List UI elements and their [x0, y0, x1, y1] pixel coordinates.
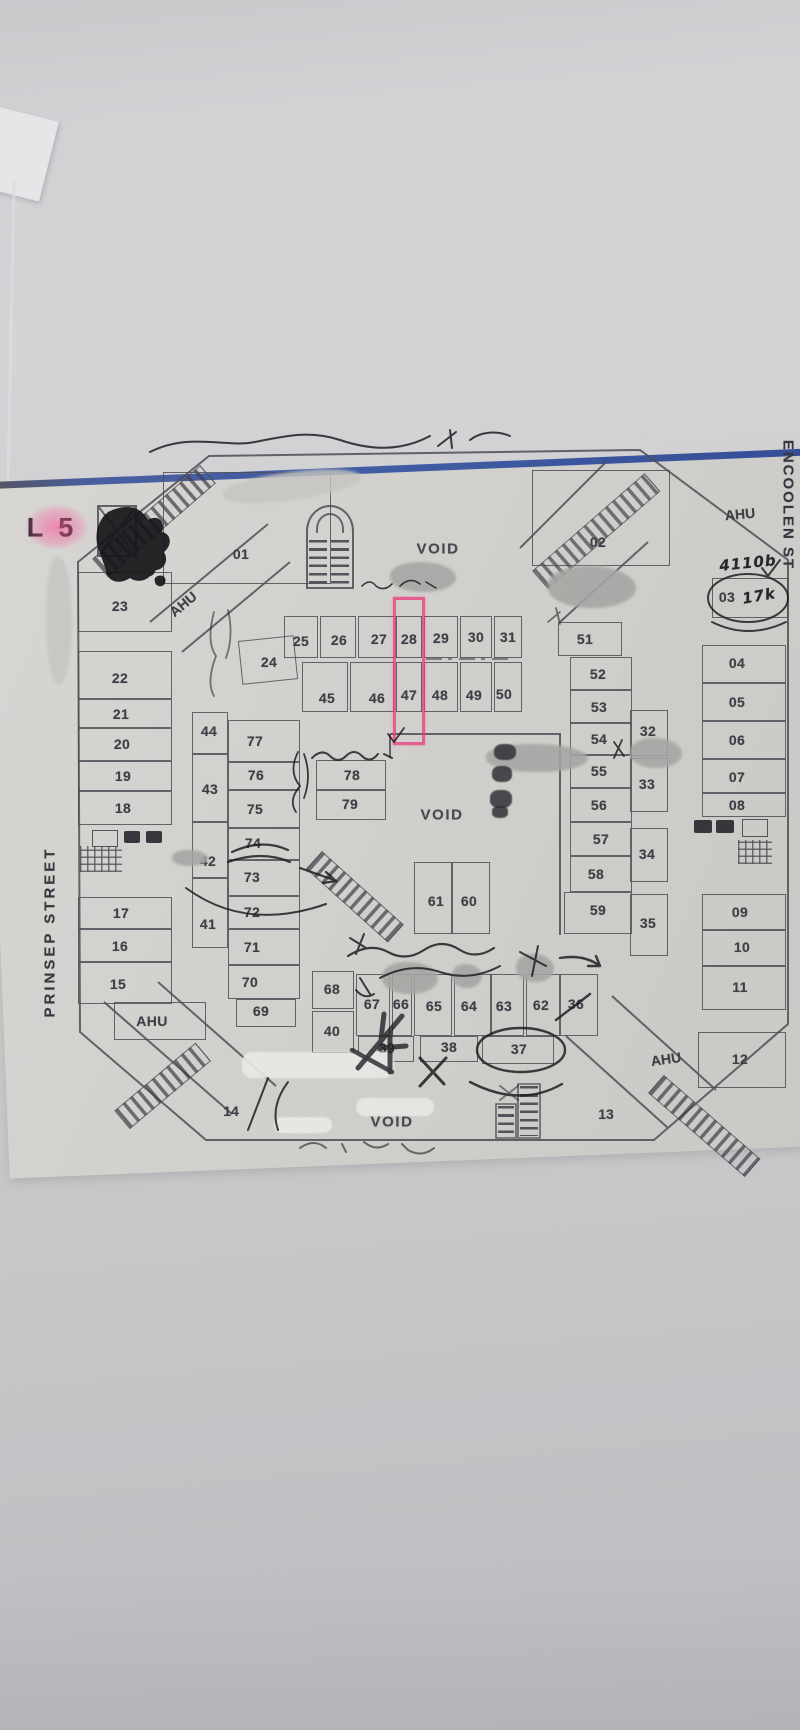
unit-label-76: 76 [248, 767, 264, 783]
gray-blob-right-of-32 [630, 738, 682, 768]
unit-label-59: 59 [590, 902, 606, 918]
unit-label-41: 41 [200, 916, 216, 932]
unit-label-26: 26 [331, 632, 347, 648]
photo-bottom-shadow [0, 1560, 800, 1730]
unit-label-19: 19 [115, 768, 131, 784]
unit-label-57: 57 [593, 831, 609, 847]
unit-label-51: 51 [577, 631, 593, 647]
unit-label-31: 31 [500, 629, 516, 645]
unit-label-18: 18 [115, 800, 131, 816]
whiteout-blob-left-margin [46, 556, 72, 684]
unit-box-72 [228, 896, 300, 929]
unit-label-40: 40 [324, 1023, 340, 1039]
unit-label-68: 68 [324, 981, 340, 997]
photo-of-floorplan: { "photo": { "highlight_color": "#e8478c… [0, 0, 800, 1730]
unit-box-74 [228, 828, 300, 860]
unit-box-77 [228, 720, 300, 762]
unit-label-32: 32 [640, 723, 656, 739]
unit-label-05: 05 [729, 694, 745, 710]
unit-label-03: 03 [719, 589, 735, 605]
unit-label-56: 56 [591, 797, 607, 813]
unit-label-11: 11 [732, 979, 748, 995]
unit-label-78: 78 [344, 767, 360, 783]
unit-label-79: 79 [342, 796, 358, 812]
unit-label-65: 65 [426, 998, 442, 1014]
gray-blob-left-of-73 [172, 850, 208, 866]
unit-label-44: 44 [201, 723, 217, 739]
unit-label-49: 49 [466, 687, 482, 703]
unit-box-02 [532, 470, 670, 566]
unit-label-66: 66 [393, 996, 409, 1012]
unit-label-10: 10 [734, 939, 750, 955]
unit-box-70 [228, 965, 300, 999]
unit-label-37: 37 [511, 1041, 527, 1057]
unit-label-20: 20 [114, 736, 130, 752]
unit-label-53: 53 [591, 699, 607, 715]
unit-box-41 [192, 878, 228, 948]
gray-blob-above-66 [382, 962, 438, 994]
unit-label-50: 50 [496, 686, 512, 702]
unit-label-04: 04 [729, 655, 745, 671]
unit-label-75: 75 [247, 801, 263, 817]
unit-label-AHU: AHU [136, 1013, 168, 1029]
unit-label-29: 29 [433, 630, 449, 646]
unit-label-67: 67 [364, 996, 380, 1012]
unit-label-16: 16 [112, 938, 128, 954]
unit-label-62: 62 [533, 997, 549, 1013]
unit-label-34: 34 [639, 846, 655, 862]
gray-blob-above-pink [390, 562, 456, 592]
unit-label-52: 52 [590, 666, 606, 682]
pink-highlight-unit-28-47 [393, 597, 425, 745]
unit-label-63: 63 [496, 998, 512, 1014]
plan-text-4110b-11: 4110b [718, 551, 777, 575]
unit-label-35: 35 [640, 915, 656, 931]
whiteout-streak-2 [356, 1098, 434, 1116]
unit-label-07: 07 [729, 769, 745, 785]
unit-box-75 [228, 790, 300, 828]
unit-label-77: 77 [247, 733, 263, 749]
plan-text-ahu-8: AHU [650, 1049, 682, 1069]
unit-label-54: 54 [591, 731, 607, 747]
plan-text-void-2: VOID [420, 807, 463, 824]
unit-label-45: 45 [319, 690, 335, 706]
unit-box-73 [228, 860, 300, 896]
plan-text-void-1: VOID [416, 541, 459, 558]
unit-label-17: 17 [113, 905, 129, 921]
unit-label-55: 55 [591, 763, 607, 779]
unit-label-09: 09 [732, 904, 748, 920]
plan-layer: 0102030405060708091011121516171819202122… [0, 0, 800, 1730]
whiteout-streak-3 [274, 1117, 332, 1133]
gray-blob-above-51 [548, 566, 636, 608]
dark-mark-corridor-4 [492, 806, 508, 818]
unit-label-43: 43 [202, 781, 218, 797]
unit-label-71: 71 [244, 939, 260, 955]
pink-highlight-L5 [26, 505, 88, 549]
unit-label-23: 23 [112, 598, 128, 614]
unit-label-25: 25 [293, 633, 309, 649]
unit-box-71 [228, 929, 300, 965]
unit-label-60: 60 [461, 893, 477, 909]
plan-text-prinsep-street-9: PRINSEP STREET [42, 847, 59, 1018]
plan-text-encoolen-st-10: ENCOOLEN ST [780, 440, 797, 570]
unit-label-06: 06 [729, 732, 745, 748]
unit-label-22: 22 [112, 670, 128, 686]
unit-label-33: 33 [639, 776, 655, 792]
unit-label-01: 01 [233, 546, 249, 562]
unit-label-72: 72 [244, 904, 260, 920]
unit-label-46: 46 [369, 690, 385, 706]
gray-blob-above-62 [516, 954, 554, 982]
plan-text-14-5: 14 [223, 1103, 239, 1119]
unit-label-61: 61 [428, 893, 444, 909]
plan-text-void-3: VOID [370, 1114, 413, 1131]
unit-label-15: 15 [110, 976, 126, 992]
gray-blob-above-64 [452, 964, 482, 988]
unit-label-69: 69 [253, 1003, 269, 1019]
unit-label-73: 73 [244, 869, 260, 885]
unit-label-21: 21 [113, 706, 129, 722]
unit-label-12: 12 [732, 1051, 748, 1067]
dark-mark-corridor-1 [494, 744, 516, 760]
dark-mark-corridor-2 [492, 766, 512, 782]
plan-text-13-4: 13 [598, 1106, 614, 1122]
unit-label-36: 36 [568, 996, 584, 1012]
unit-label-38: 38 [441, 1039, 457, 1055]
unit-label-74: 74 [245, 835, 261, 851]
unit-label-70: 70 [242, 974, 258, 990]
unit-label-02: 02 [590, 534, 606, 550]
whiteout-streak-1 [242, 1052, 394, 1078]
plan-text-ahu-7: AHU [724, 505, 756, 524]
unit-label-64: 64 [461, 998, 477, 1014]
unit-label-27: 27 [371, 631, 387, 647]
unit-label-30: 30 [468, 629, 484, 645]
unit-label-08: 08 [729, 797, 745, 813]
unit-label-48: 48 [432, 687, 448, 703]
unit-label-24: 24 [261, 654, 277, 670]
unit-label-58: 58 [588, 866, 604, 882]
